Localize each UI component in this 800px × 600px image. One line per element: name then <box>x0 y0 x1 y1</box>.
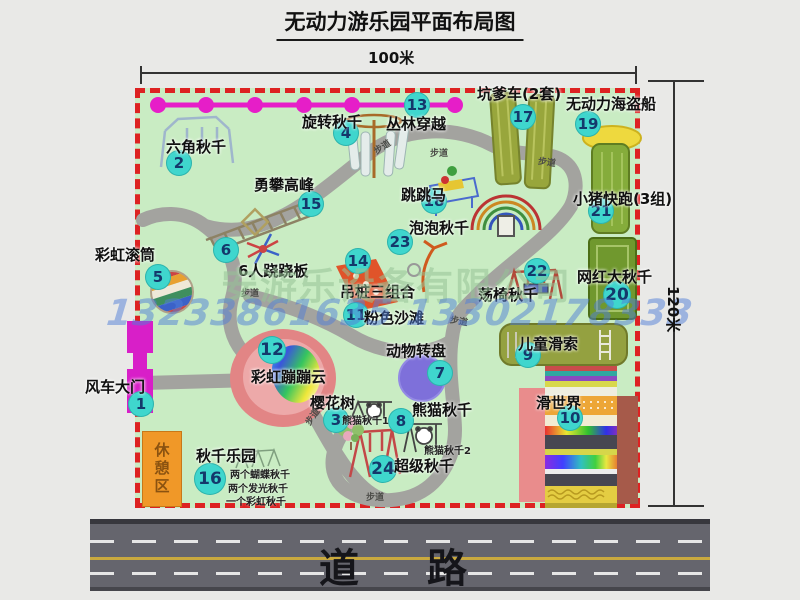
road: 道 路 <box>90 519 710 591</box>
rest-area-label: 休憩区 <box>152 442 173 496</box>
rest-area-box: 休憩区 <box>142 431 182 507</box>
dimension-width-label: 100米 <box>368 47 414 68</box>
road-label: 道 路 <box>90 536 710 594</box>
dimension-line-width <box>140 72 637 74</box>
watermark-phone: 13233861635 13302178333 <box>105 293 696 334</box>
dimension-height-label: 120米 <box>663 286 684 332</box>
screenshot-root: 无动力游乐园平面布局图 100米 120米 <box>0 0 800 600</box>
page-title: 无动力游乐园平面布局图 <box>277 6 524 41</box>
